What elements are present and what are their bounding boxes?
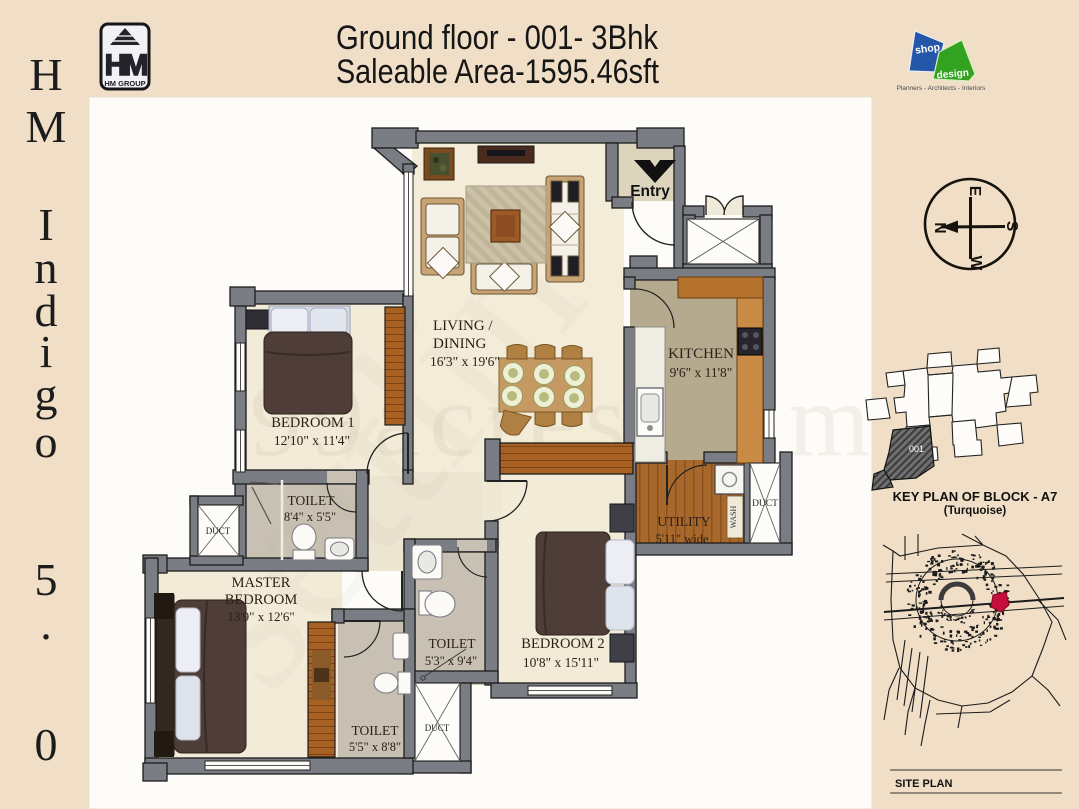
svg-text:5'5" x 8'8": 5'5" x 8'8" — [349, 740, 401, 754]
svg-text:(Turquoise): (Turquoise) — [944, 505, 1007, 517]
svg-text:DINING: DINING — [433, 336, 486, 352]
svg-text:KITCHEN: KITCHEN — [668, 346, 734, 362]
svg-text:UTILITY: UTILITY — [657, 514, 710, 529]
svg-text:E: E — [966, 186, 983, 196]
svg-text:S: S — [1003, 221, 1020, 231]
svg-text:Saleable Area-1595.46sft: Saleable Area-1595.46sft — [336, 53, 659, 91]
svg-text:DUCT: DUCT — [752, 499, 778, 509]
svg-text:LIVING /: LIVING / — [433, 318, 493, 334]
svg-text:W: W — [967, 256, 984, 271]
svg-text:HM: HM — [105, 49, 147, 82]
svg-text:o: o — [35, 416, 58, 467]
svg-text:0: 0 — [35, 719, 58, 770]
svg-text:TOILET: TOILET — [352, 723, 400, 738]
svg-text:MASTER: MASTER — [232, 575, 291, 591]
svg-text:g: g — [35, 369, 58, 420]
svg-text:DUCT: DUCT — [425, 723, 450, 733]
svg-text:M: M — [26, 101, 67, 152]
svg-text:BEDROOM 1: BEDROOM 1 — [271, 415, 354, 431]
svg-text:9'6" x 11'8": 9'6" x 11'8" — [670, 365, 733, 380]
svg-text:KEY PLAN OF BLOCK - A7: KEY PLAN OF BLOCK - A7 — [893, 489, 1058, 504]
svg-text:DUCT: DUCT — [206, 526, 231, 536]
svg-text:001: 001 — [909, 444, 924, 454]
svg-text:Entry: Entry — [630, 183, 670, 200]
svg-text:SITE PLAN: SITE PLAN — [895, 778, 953, 790]
svg-text:H: H — [29, 49, 62, 100]
svg-text:N: N — [931, 222, 948, 233]
svg-text:12'10" x 11'4": 12'10" x 11'4" — [274, 433, 350, 448]
svg-text:.: . — [40, 598, 52, 649]
svg-text:BEDROOM 2: BEDROOM 2 — [521, 636, 604, 652]
svg-text:Ground floor - 001- 3Bhk: Ground floor - 001- 3Bhk — [336, 19, 659, 57]
svg-text:WASH: WASH — [729, 505, 738, 528]
svg-text:BEDROOM: BEDROOM — [225, 592, 298, 608]
svg-text:Planners - Architects - Interi: Planners - Architects - Interiors — [897, 85, 987, 92]
svg-text:10'8" x 15'11": 10'8" x 15'11" — [523, 655, 599, 670]
svg-text:13'9" x 12'6": 13'9" x 12'6" — [227, 609, 294, 624]
svg-text:TOILET: TOILET — [429, 636, 477, 651]
svg-text:5'11" wide: 5'11" wide — [655, 532, 709, 546]
svg-text:TOILET: TOILET — [288, 493, 336, 508]
svg-text:8'4" x 5'5": 8'4" x 5'5" — [284, 510, 336, 524]
svg-text:16'3" x 19'6": 16'3" x 19'6" — [430, 354, 500, 369]
svg-text:5'3" x 9'4": 5'3" x 9'4" — [425, 654, 477, 668]
svg-text:HM GROUP: HM GROUP — [104, 79, 145, 88]
